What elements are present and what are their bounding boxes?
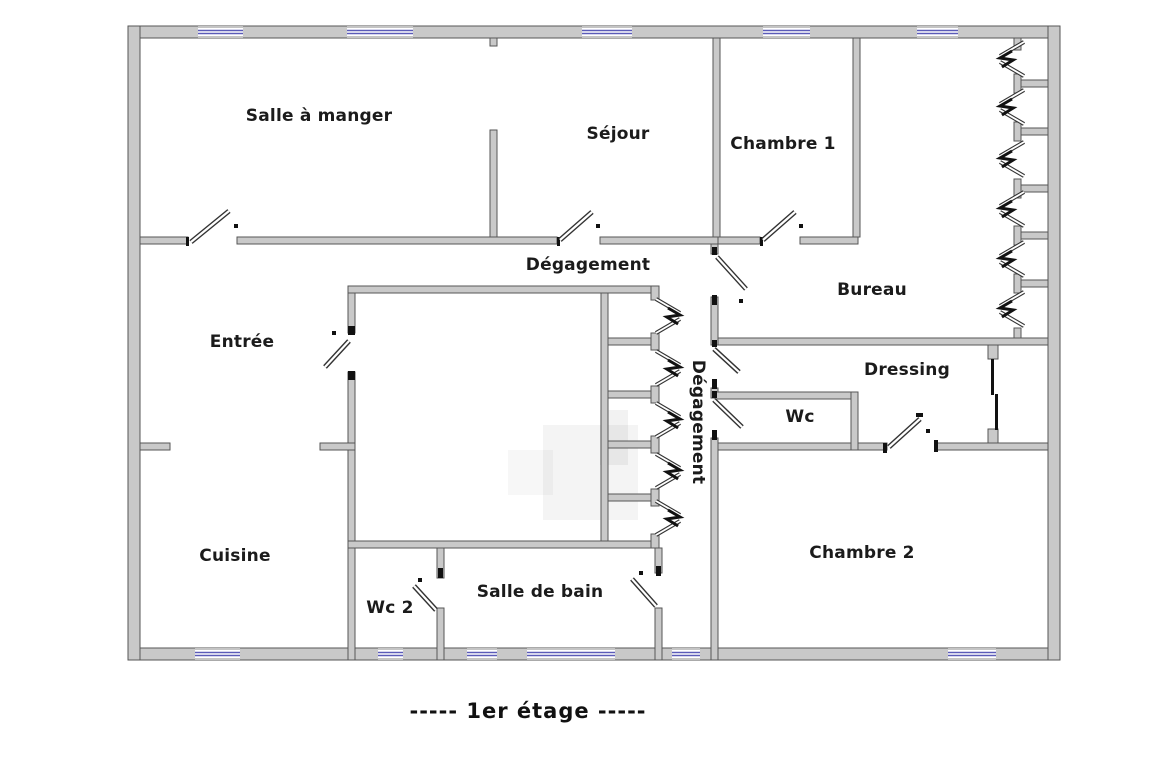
window <box>347 26 413 38</box>
wall <box>608 494 651 501</box>
wall <box>348 541 658 548</box>
wall <box>348 372 355 660</box>
wall <box>237 237 557 244</box>
wall <box>490 38 497 46</box>
door-jamb <box>186 237 189 246</box>
wall <box>348 286 658 293</box>
door-jamb <box>712 379 717 389</box>
wall <box>655 608 662 660</box>
window <box>948 648 996 660</box>
door-jamb <box>712 391 717 398</box>
door-latch-dot <box>332 331 336 335</box>
door-latch-dot <box>739 299 743 303</box>
wall <box>988 345 998 359</box>
wall <box>1048 26 1060 660</box>
wall <box>608 441 651 448</box>
wall <box>718 338 1048 345</box>
room-label-bureau: Bureau <box>837 280 907 300</box>
door-jamb <box>712 247 717 255</box>
room-label-chambre-1: Chambre 1 <box>730 134 835 154</box>
window <box>467 648 497 660</box>
window <box>763 26 810 38</box>
room-label-entree: Entrée <box>210 332 275 352</box>
floor-caption: ----- 1er étage ----- <box>409 699 646 723</box>
wall <box>1014 328 1021 338</box>
wall <box>608 391 651 398</box>
door-jamb <box>656 566 661 576</box>
door-latch-dot <box>926 429 930 433</box>
wall <box>988 429 998 443</box>
door-latch-dot <box>418 578 422 582</box>
wall <box>1014 122 1021 141</box>
room-label-sejour: Séjour <box>587 124 650 144</box>
room-label-wc-2: Wc 2 <box>366 598 413 618</box>
door-jamb <box>712 340 717 347</box>
door-jamb <box>712 430 717 440</box>
door-latch-dot <box>639 571 643 575</box>
wall <box>853 38 860 237</box>
wall <box>718 443 887 450</box>
door-jamb <box>348 371 355 380</box>
door-jamb <box>916 413 923 417</box>
wall <box>935 443 1048 450</box>
wall <box>651 386 659 403</box>
wall <box>140 237 188 244</box>
wall <box>651 333 659 350</box>
door-jamb <box>712 295 717 305</box>
window <box>198 26 243 38</box>
door-latch-dot <box>234 224 238 228</box>
room-label-cuisine: Cuisine <box>199 546 270 566</box>
wall <box>490 130 497 237</box>
room-label-degagement-v: Dégagement <box>688 360 708 484</box>
watermark <box>508 450 553 495</box>
wall <box>713 38 720 237</box>
wall <box>608 338 651 345</box>
door-jamb <box>438 568 443 578</box>
wall <box>320 443 355 450</box>
wall <box>140 443 170 450</box>
door-jamb <box>883 443 887 453</box>
window <box>527 648 615 660</box>
room-label-chambre-2: Chambre 2 <box>809 543 914 563</box>
room-label-degagement-h: Dégagement <box>526 255 650 275</box>
wall <box>711 438 718 660</box>
floor-plan: Salle à manger Séjour Chambre 1 Dégageme… <box>0 0 1164 759</box>
wall <box>128 26 140 660</box>
sliding-door <box>991 359 994 395</box>
door-latch-dot <box>596 224 600 228</box>
wall <box>651 436 659 453</box>
door-latch-dot <box>799 224 803 228</box>
floor-plan-svg <box>0 0 1164 759</box>
window <box>917 26 958 38</box>
window <box>672 648 700 660</box>
wall <box>1014 274 1021 293</box>
door-jamb <box>348 326 355 335</box>
window <box>582 26 632 38</box>
wall <box>600 237 718 244</box>
window <box>195 648 240 660</box>
wall <box>851 392 858 450</box>
wall <box>718 237 760 244</box>
room-label-salle-a-manger: Salle à manger <box>246 106 392 126</box>
room-label-wc: Wc <box>785 407 814 427</box>
sliding-door <box>995 394 998 430</box>
door-jamb <box>934 440 938 452</box>
wall <box>601 293 608 541</box>
wall <box>715 392 858 399</box>
room-label-salle-de-bain: Salle de bain <box>477 582 604 602</box>
wall <box>437 608 444 660</box>
window <box>378 648 403 660</box>
room-label-dressing: Dressing <box>864 360 950 380</box>
wall <box>800 237 858 244</box>
